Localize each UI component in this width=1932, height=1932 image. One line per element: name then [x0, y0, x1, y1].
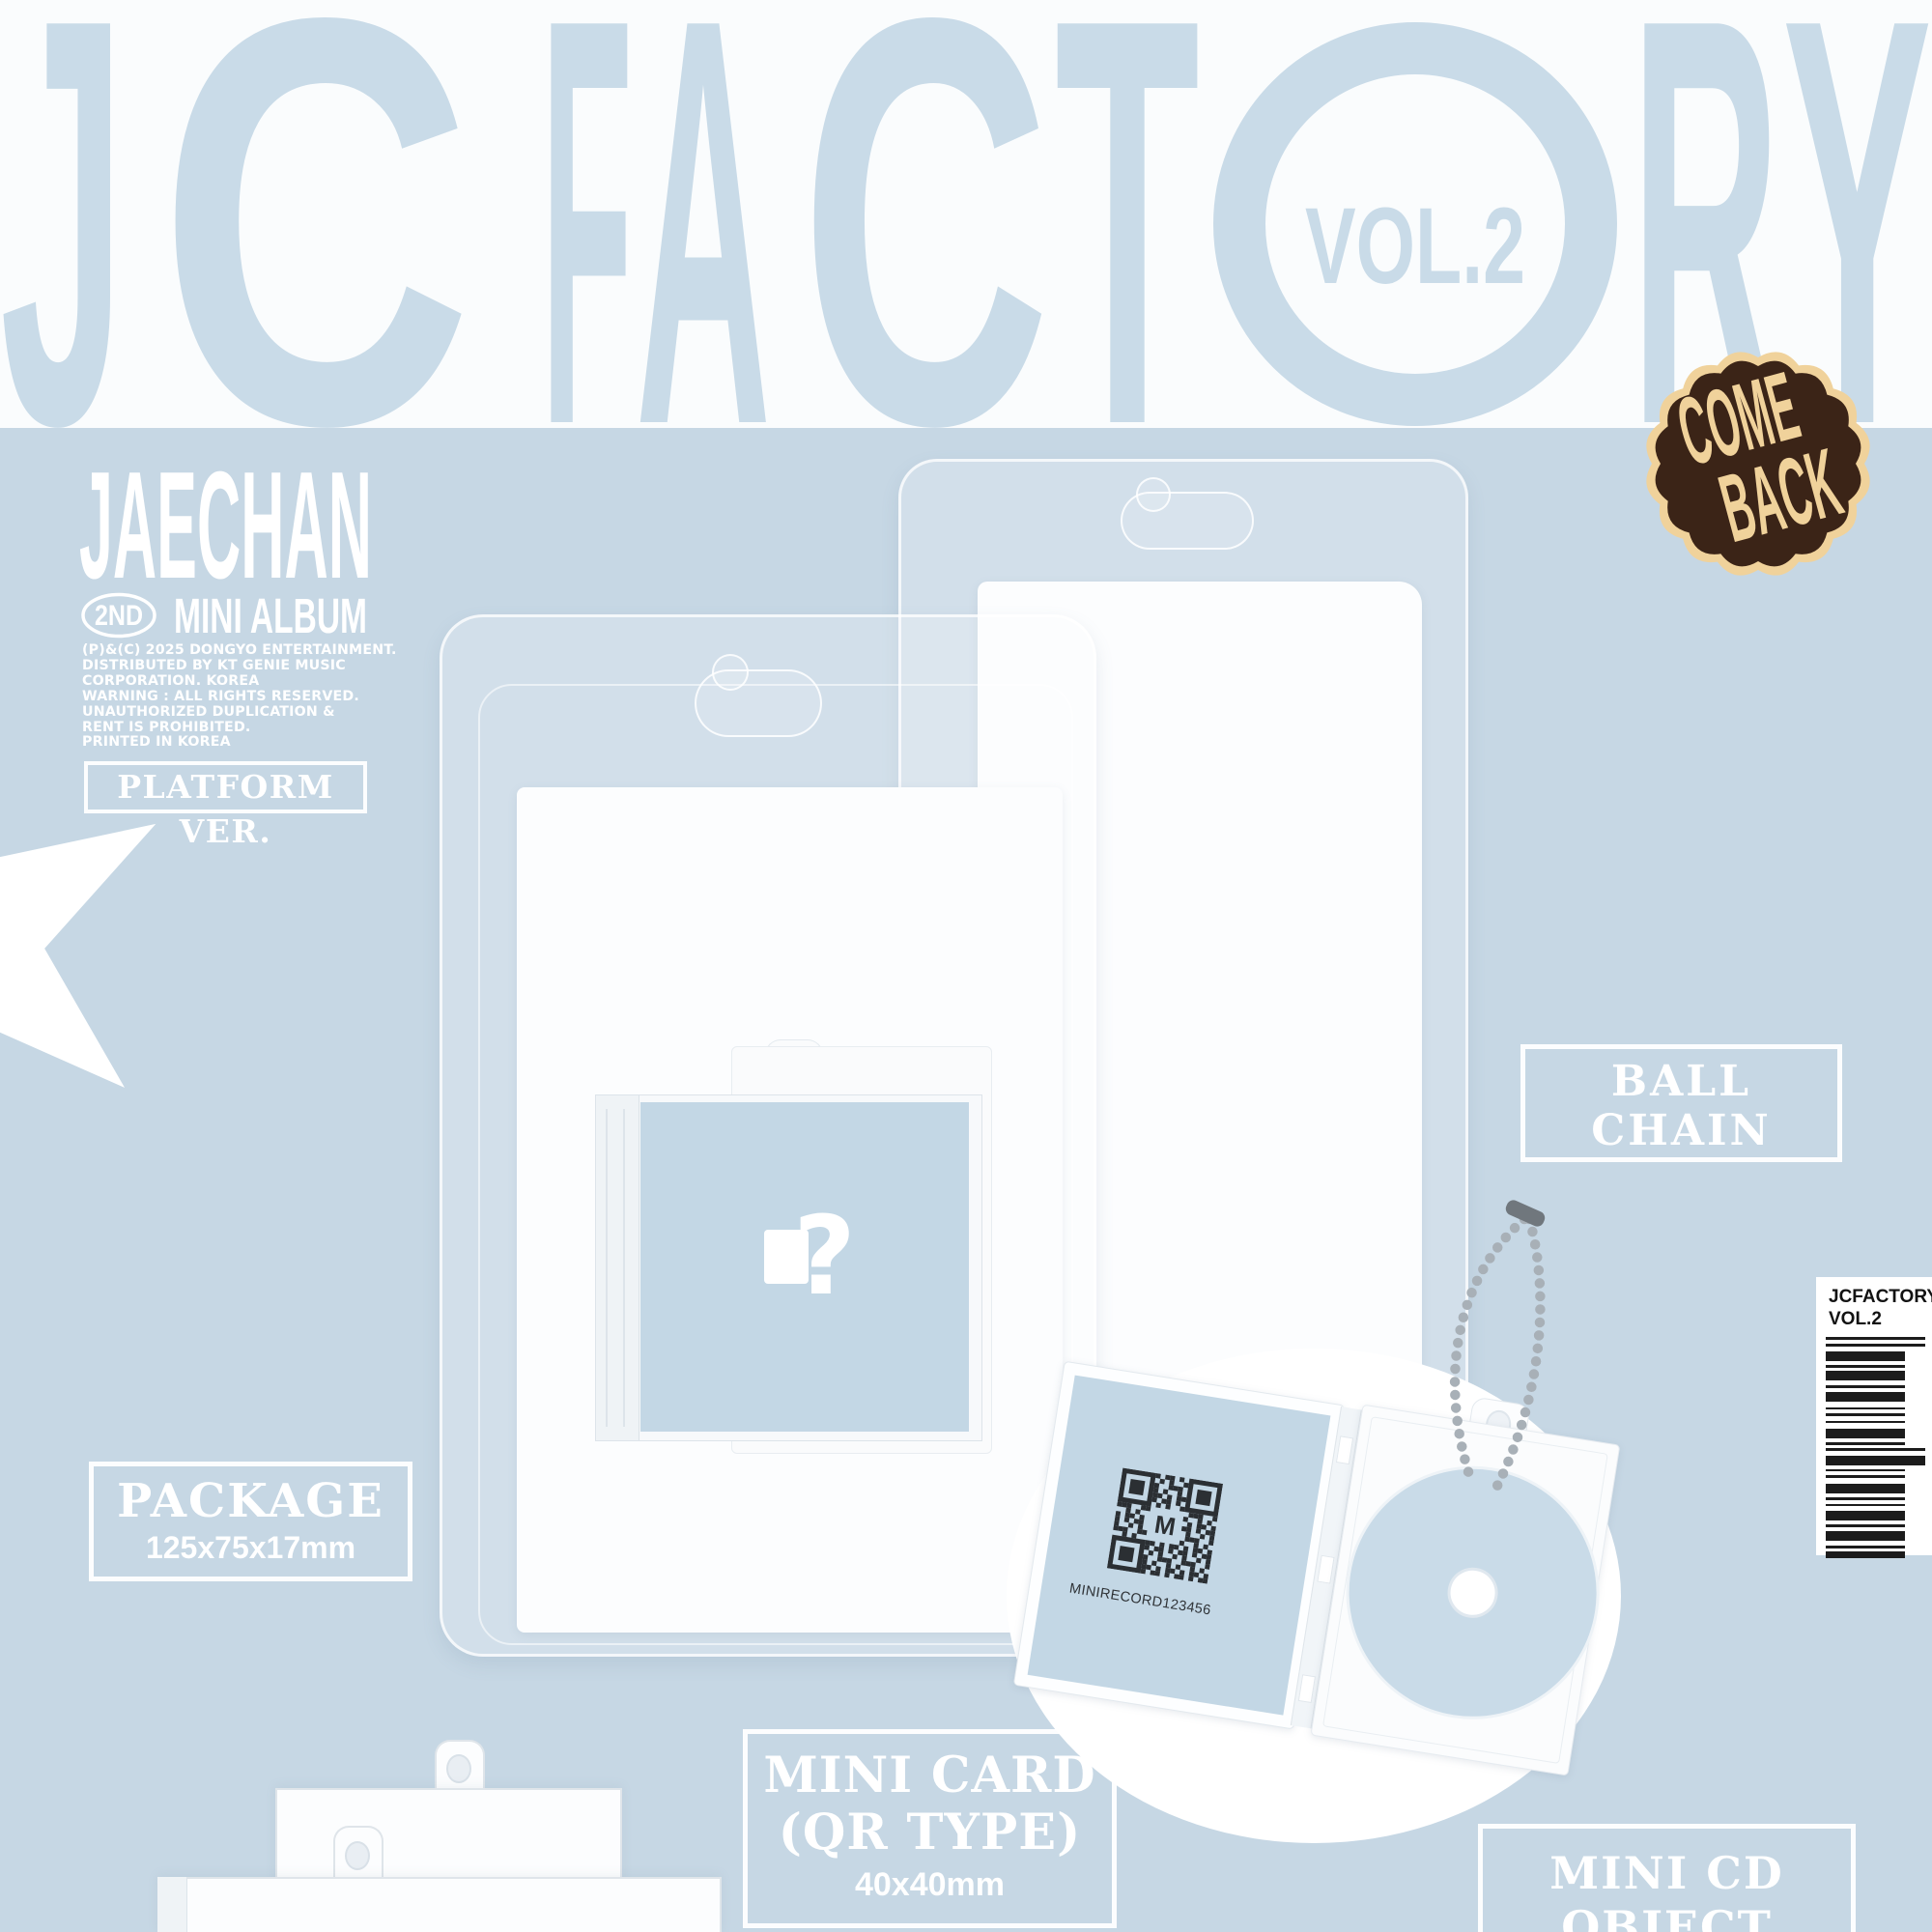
package-title: PACKAGE — [94, 1476, 408, 1526]
mini-cd-line2: OBJECT — [1483, 1900, 1851, 1932]
qr-center-letter: M — [1152, 1510, 1178, 1542]
platform-version-label: PLATFORM VER. — [84, 761, 367, 813]
headline-letter-t: T — [1055, 0, 1200, 435]
barcode-title-line1: JCFACTORY — [1829, 1286, 1932, 1308]
copyright-line: DISTRIBUTED BY KT GENIE MUSIC — [82, 659, 397, 674]
mini-card-size: 40x40mm — [748, 1861, 1112, 1908]
barcode-panel: JCFACTORY VOL.2 — [1816, 1277, 1932, 1555]
edition-text: MINI ALBUM — [174, 588, 367, 643]
bottom-case-front-spine — [157, 1877, 187, 1932]
ball-chain — [1401, 1188, 1642, 1517]
disc-center-hole — [1444, 1564, 1501, 1621]
cover-question-mark: ? — [793, 1203, 856, 1311]
copyright-block: (P)&(C) 2025 DONGYO ENTERTAINMENT. DISTR… — [82, 643, 397, 751]
vol2-text: VOL.2 — [1305, 185, 1525, 306]
barcode-title-line2: VOL.2 — [1829, 1308, 1932, 1330]
package-label: PACKAGE 125x75x17mm — [89, 1462, 412, 1581]
mini-cd-line1: MINI CD — [1483, 1846, 1851, 1900]
ball-chain-line2: CHAIN — [1525, 1106, 1837, 1155]
mini-cd-cover: ? — [640, 1102, 969, 1432]
mini-card-line2: (QR TYPE) — [748, 1804, 1112, 1861]
platform-version-text: PLATFORM VER. — [88, 765, 363, 854]
mini-card-label: MINI CARD (QR TYPE) 40x40mm — [743, 1729, 1117, 1928]
copyright-line: PRINTED IN KOREA — [82, 735, 397, 751]
euro-slot-back-bump — [1136, 477, 1171, 512]
ball-chain-line1: BALL — [1525, 1057, 1837, 1106]
bottom-case-front — [157, 1877, 722, 1932]
mini-card-line1: MINI CARD — [748, 1747, 1112, 1804]
barcode-bars — [1826, 1337, 1932, 1558]
bottom-case-front-hole — [345, 1841, 370, 1870]
headline-letter-a: A — [636, 0, 771, 435]
headline-letter-c2: C — [800, 0, 1051, 435]
ball-chain-label: BALL CHAIN — [1520, 1044, 1842, 1162]
copyright-line: (P)&(C) 2025 DONGYO ENTERTAINMENT. — [82, 643, 397, 659]
edition-badge-text: 2ND — [95, 600, 143, 632]
jewel-spine — [596, 1095, 639, 1440]
chain-strand-right — [1495, 1219, 1540, 1490]
mini-cd-object-label: MINI CD OBJECT — [1478, 1824, 1856, 1932]
copyright-line: WARNING : ALL RIGHTS RESERVED. — [82, 690, 397, 705]
copyright-line: CORPORATION. KOREA — [82, 674, 397, 690]
headline-letter-j: J — [0, 0, 126, 435]
package-size: 125x75x17mm — [94, 1526, 408, 1569]
qr-code: M — [1107, 1468, 1223, 1584]
artist-name: JAECHAN — [79, 444, 372, 611]
headline-letter-c1: C — [157, 0, 473, 435]
headline-letter-f: F — [541, 0, 633, 435]
artist-block: JAECHAN 2ND MINI ALBUM — [58, 444, 464, 652]
bottom-case-back-hole — [446, 1754, 471, 1783]
comeback-badge: COME BACK — [1634, 340, 1882, 587]
copyright-line: RENT IS PROHIBITED. — [82, 721, 397, 736]
mini-cd-jewel-case: ? — [595, 1094, 982, 1441]
poster-canvas: J C F A C T R Y VOL.2 JAECHAN 2ND MINI A… — [0, 0, 1932, 1932]
copyright-line: UNAUTHORIZED DUPLICATION & — [82, 705, 397, 721]
